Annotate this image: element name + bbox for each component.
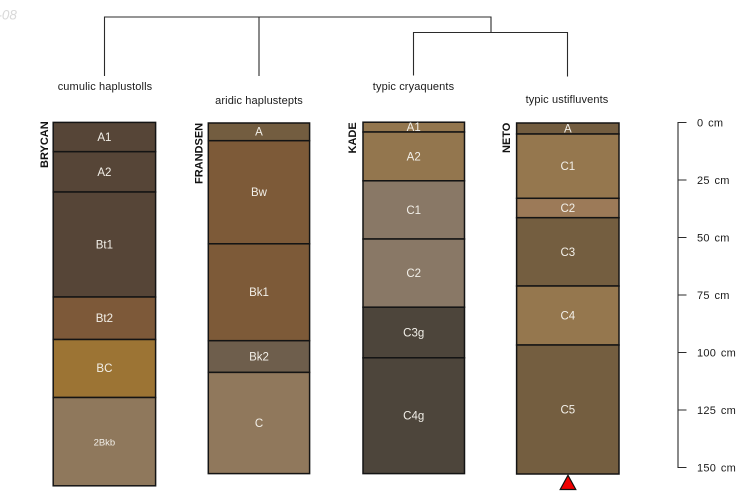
svg-text:C2: C2	[560, 203, 575, 215]
svg-text:Bk2: Bk2	[249, 351, 269, 363]
svg-text:cumulic haplustolls: cumulic haplustolls	[58, 81, 153, 93]
svg-text:C5: C5	[560, 404, 575, 416]
svg-text:A1: A1	[97, 132, 111, 144]
svg-text:typic cryaquents: typic cryaquents	[373, 81, 455, 93]
svg-text:C4: C4	[560, 310, 575, 322]
svg-text:FRANDSEN: FRANDSEN	[194, 123, 206, 184]
svg-text:2Bkb: 2Bkb	[94, 438, 116, 449]
svg-text:50 cm: 50 cm	[697, 232, 730, 244]
svg-text:BRYCAN: BRYCAN	[39, 121, 51, 168]
svg-text:C1: C1	[560, 161, 575, 173]
svg-text:Bt1: Bt1	[96, 239, 113, 251]
svg-text:Bt2: Bt2	[96, 313, 113, 325]
svg-text:Bk1: Bk1	[249, 287, 269, 299]
svg-text:BC: BC	[96, 363, 112, 375]
svg-text:25 cm: 25 cm	[697, 175, 730, 187]
svg-text:aridic haplustepts: aridic haplustepts	[215, 95, 303, 107]
svg-text:150 cm: 150 cm	[697, 462, 736, 474]
svg-text:C1: C1	[406, 205, 421, 217]
svg-text:0 cm: 0 cm	[697, 117, 723, 129]
svg-text:100 cm: 100 cm	[697, 347, 736, 359]
svg-text:C3: C3	[560, 247, 575, 259]
svg-text:KADE: KADE	[347, 122, 359, 153]
svg-text:2024-08: 2024-08	[0, 8, 17, 23]
svg-text:A: A	[255, 127, 263, 139]
svg-text:Bw: Bw	[251, 187, 268, 199]
svg-text:NETO: NETO	[501, 122, 513, 153]
svg-text:75 cm: 75 cm	[697, 290, 730, 302]
svg-text:A2: A2	[97, 167, 111, 179]
svg-text:C: C	[255, 418, 263, 430]
svg-text:125 cm: 125 cm	[697, 405, 736, 417]
svg-text:C3g: C3g	[403, 327, 424, 339]
svg-text:typic ustifluvents: typic ustifluvents	[526, 94, 609, 106]
svg-text:C4g: C4g	[403, 411, 424, 423]
svg-text:A2: A2	[407, 151, 421, 163]
svg-text:C2: C2	[406, 268, 421, 280]
